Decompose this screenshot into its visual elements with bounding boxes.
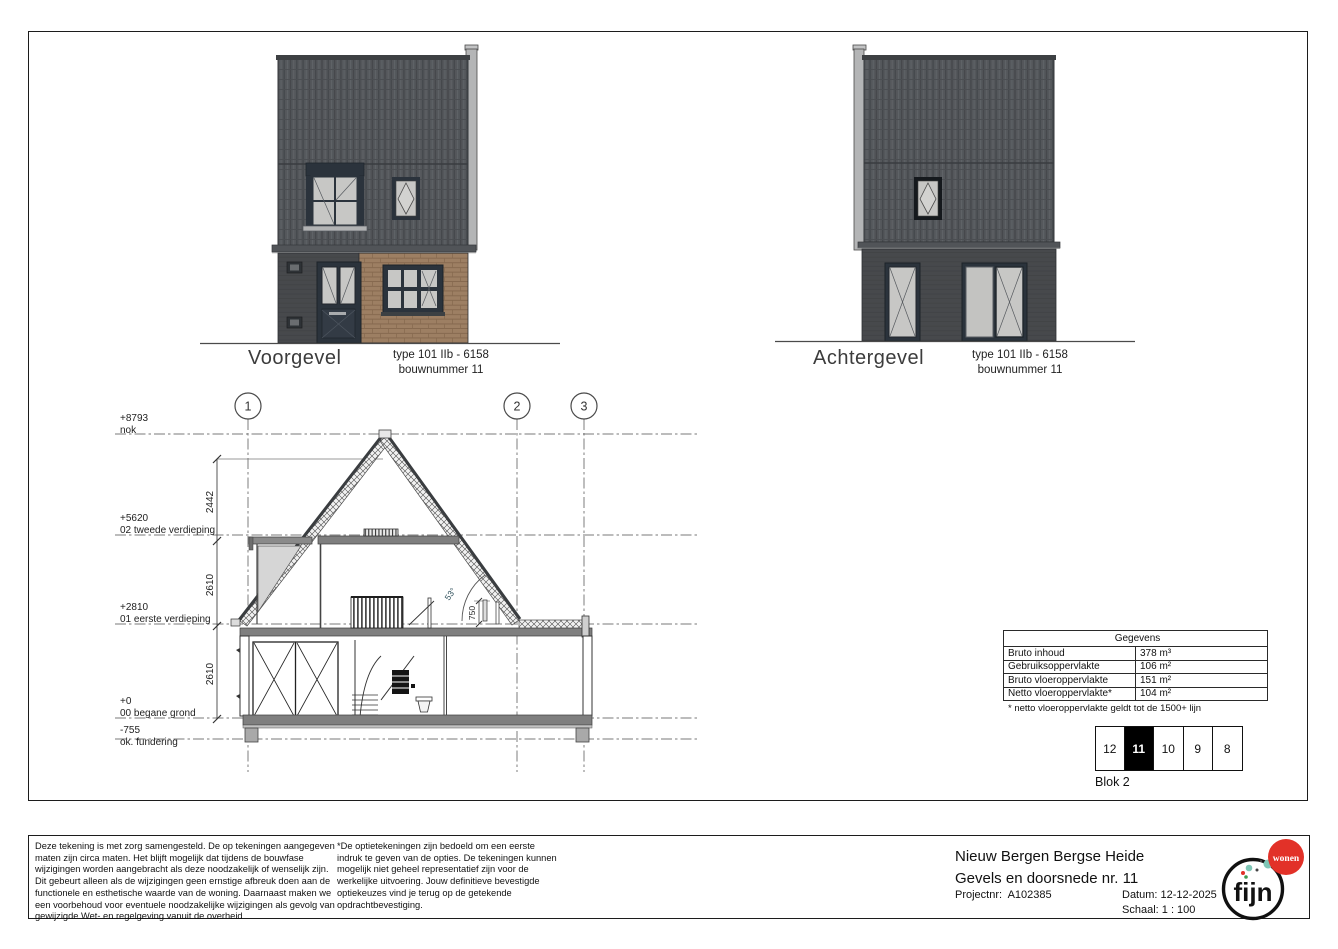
wall-marker: [236, 648, 240, 653]
wardrobe: [253, 642, 338, 717]
rear-facade-drawing: [770, 40, 1140, 346]
loft-hatch-rail: [364, 529, 398, 536]
ridge-cap: [862, 55, 1056, 60]
schaal-row: Schaal: 1 : 100: [1122, 904, 1195, 916]
projectnr-value: A102385: [1008, 889, 1052, 901]
grid-1-label: 1: [245, 400, 252, 414]
logo-text: fijn: [1234, 877, 1273, 907]
left-gutter: [231, 619, 240, 626]
schaal-value: 1 : 100: [1162, 904, 1196, 916]
dim-2610-upper: 2610: [205, 573, 216, 596]
gegevens-table-wrap: Gegevens Bruto inhoud 378 m³ Gebruiksopp…: [1003, 630, 1268, 714]
drawing-sheet: { "facades": { "front": {"label": "Voorg…: [0, 0, 1338, 949]
parapet-dim-label: 750: [467, 606, 477, 620]
upper-window-sill: [303, 226, 367, 231]
schaal-label: Schaal:: [1122, 904, 1159, 916]
parapet-dimension: 750: [467, 598, 499, 627]
level-eerste-elevation: +2810: [120, 602, 211, 614]
ground-floor-slab: [243, 715, 592, 725]
level-tweede: +5620 02 tweede verdieping: [120, 513, 215, 536]
door-post: [428, 598, 431, 628]
roof: [864, 58, 1054, 242]
blok-cell-11-active: 11: [1125, 726, 1155, 771]
logo-dot-red: [1241, 871, 1245, 875]
level-nok: +8793 nok: [120, 413, 148, 436]
first-floor-slab: [240, 628, 592, 636]
table-row: Bruto vloeroppervlakte 151 m²: [1004, 674, 1268, 688]
rear-flat-roof: [519, 620, 583, 628]
foundation-pier: [245, 728, 258, 742]
level-begane-grond: +0 00 begane grond: [120, 696, 196, 719]
disclaimer-right: *De optietekeningen zijn bedoeld om een …: [337, 841, 559, 911]
datum-label: Datum:: [1122, 889, 1157, 901]
shaded-wall-triangle: [258, 546, 301, 612]
dim-2610-lower: 2610: [205, 662, 216, 685]
gegevens-row-value: 104 m²: [1136, 687, 1268, 701]
drawing-name: Gevels en doorsnede nr. 11: [955, 868, 1138, 890]
gegevens-row-label: Bruto inhoud: [1004, 647, 1136, 661]
blok-cell-8: 8: [1213, 726, 1243, 771]
disclaimer-left: Deze tekening is met zorg samengesteld. …: [35, 841, 341, 923]
table-row: Netto vloeroppervlakte* 104 m²: [1004, 687, 1268, 701]
gegevens-footnote: * netto vloeroppervlakte geldt tot de 15…: [1003, 703, 1268, 714]
window-sill: [381, 312, 445, 316]
gegevens-table: Gegevens Bruto inhoud 378 m³ Gebruiksopp…: [1003, 630, 1268, 701]
blok-cell-9: 9: [1184, 726, 1214, 771]
wall-marker: [236, 694, 240, 699]
fijn-wonen-logo: fijn wonen: [1216, 836, 1310, 924]
table-row: Gebruiksoppervlakte 106 m²: [1004, 660, 1268, 674]
gegevens-title: Gegevens: [1004, 631, 1268, 647]
right-exterior-wall: [583, 636, 592, 716]
level-fundering-name: ok. fundering: [120, 737, 178, 749]
radiator: [392, 670, 415, 694]
wonen-badge-text: wonen: [1273, 854, 1300, 864]
flat-roof-edge: [582, 616, 589, 637]
level-begane-grond-elevation: +0: [120, 696, 196, 708]
section-drawing: 1 2 3 2442 2610 2610: [110, 390, 710, 785]
roof-angle-label: 53°: [442, 586, 458, 602]
toilet: [416, 697, 432, 712]
gegevens-row-value: 151 m²: [1136, 674, 1268, 688]
level-nok-elevation: +8793: [120, 413, 148, 425]
rear-facade-label: Achtergevel: [813, 347, 924, 370]
knee-wall-post: [496, 602, 499, 624]
attic-floor-slab: [318, 536, 459, 544]
blok-cell-12: 12: [1095, 726, 1125, 771]
blok-strip: 12 11 10 9 8: [1095, 726, 1243, 771]
grid-2-label: 2: [514, 400, 521, 414]
rear-type-label: type 101 IIb - 6158: [972, 349, 1068, 361]
blok-label: Blok 2: [1095, 775, 1243, 789]
left-exterior-wall: [240, 636, 249, 716]
level-tweede-elevation: +5620: [120, 513, 215, 525]
gutter: [858, 242, 1060, 248]
blok-selector: 12 11 10 9 8 Blok 2: [1095, 726, 1243, 789]
datum-value: 12-12-2025: [1161, 889, 1217, 901]
chimney: [854, 49, 864, 250]
letter-slot: [329, 312, 346, 315]
grid-3-label: 3: [581, 400, 588, 414]
level-begane-grond-name: 00 begane grond: [120, 708, 196, 720]
level-eerste: +2810 01 eerste verdieping: [120, 602, 211, 625]
grid-bubbles: 1 2 3: [235, 393, 597, 419]
foundation-strip: [243, 725, 592, 728]
level-fundering-elevation: -755: [120, 725, 178, 737]
level-fundering: -755 ok. fundering: [120, 725, 178, 748]
stair-railing: [351, 597, 403, 628]
foundation-pier: [576, 728, 589, 742]
gegevens-row-label: Gebruiksoppervlakte: [1004, 660, 1136, 674]
gegevens-row-value: 106 m²: [1136, 660, 1268, 674]
level-nok-name: nok: [120, 425, 148, 437]
blok-cell-10: 10: [1154, 726, 1184, 771]
projectnr-row: Projectnr: A102385: [955, 889, 1052, 901]
gegevens-row-label: Bruto vloeroppervlakte: [1004, 674, 1136, 688]
datum-row: Datum: 12-12-2025: [1122, 889, 1217, 901]
logo-dot-teal: [1246, 865, 1253, 872]
vertical-dimension-line: 2442 2610 2610: [205, 455, 383, 723]
knee-wall: [483, 600, 487, 621]
project-name: Nieuw Bergen Bergse Heide: [955, 846, 1144, 868]
logo-dot-dark: [1256, 869, 1259, 872]
gegevens-row-value: 378 m³: [1136, 647, 1268, 661]
level-tweede-name: 02 tweede verdieping: [120, 525, 215, 537]
table-row: Bruto inhoud 378 m³: [1004, 647, 1268, 661]
projectnr-label: Projectnr:: [955, 889, 1002, 901]
front-facade-drawing: [195, 40, 565, 346]
left-flat-roof: [249, 537, 312, 544]
ridge-detail: [379, 430, 391, 438]
upper-window-header: [306, 163, 364, 176]
rear-bouwnummer-label: bouwnummer 11: [978, 364, 1063, 376]
gutter: [272, 245, 476, 252]
gegevens-row-label: Netto vloeroppervlakte*: [1004, 687, 1136, 701]
front-facade-label: Voorgevel: [248, 347, 341, 370]
dim-2442: 2442: [205, 490, 216, 513]
ridge-cap: [276, 55, 470, 60]
level-eerste-name: 01 eerste verdieping: [120, 614, 211, 626]
front-bouwnummer-label: bouwnummer 11: [399, 364, 484, 376]
front-type-label: type 101 IIb - 6158: [393, 349, 489, 361]
logo-dot-dark-small: [1260, 860, 1262, 862]
